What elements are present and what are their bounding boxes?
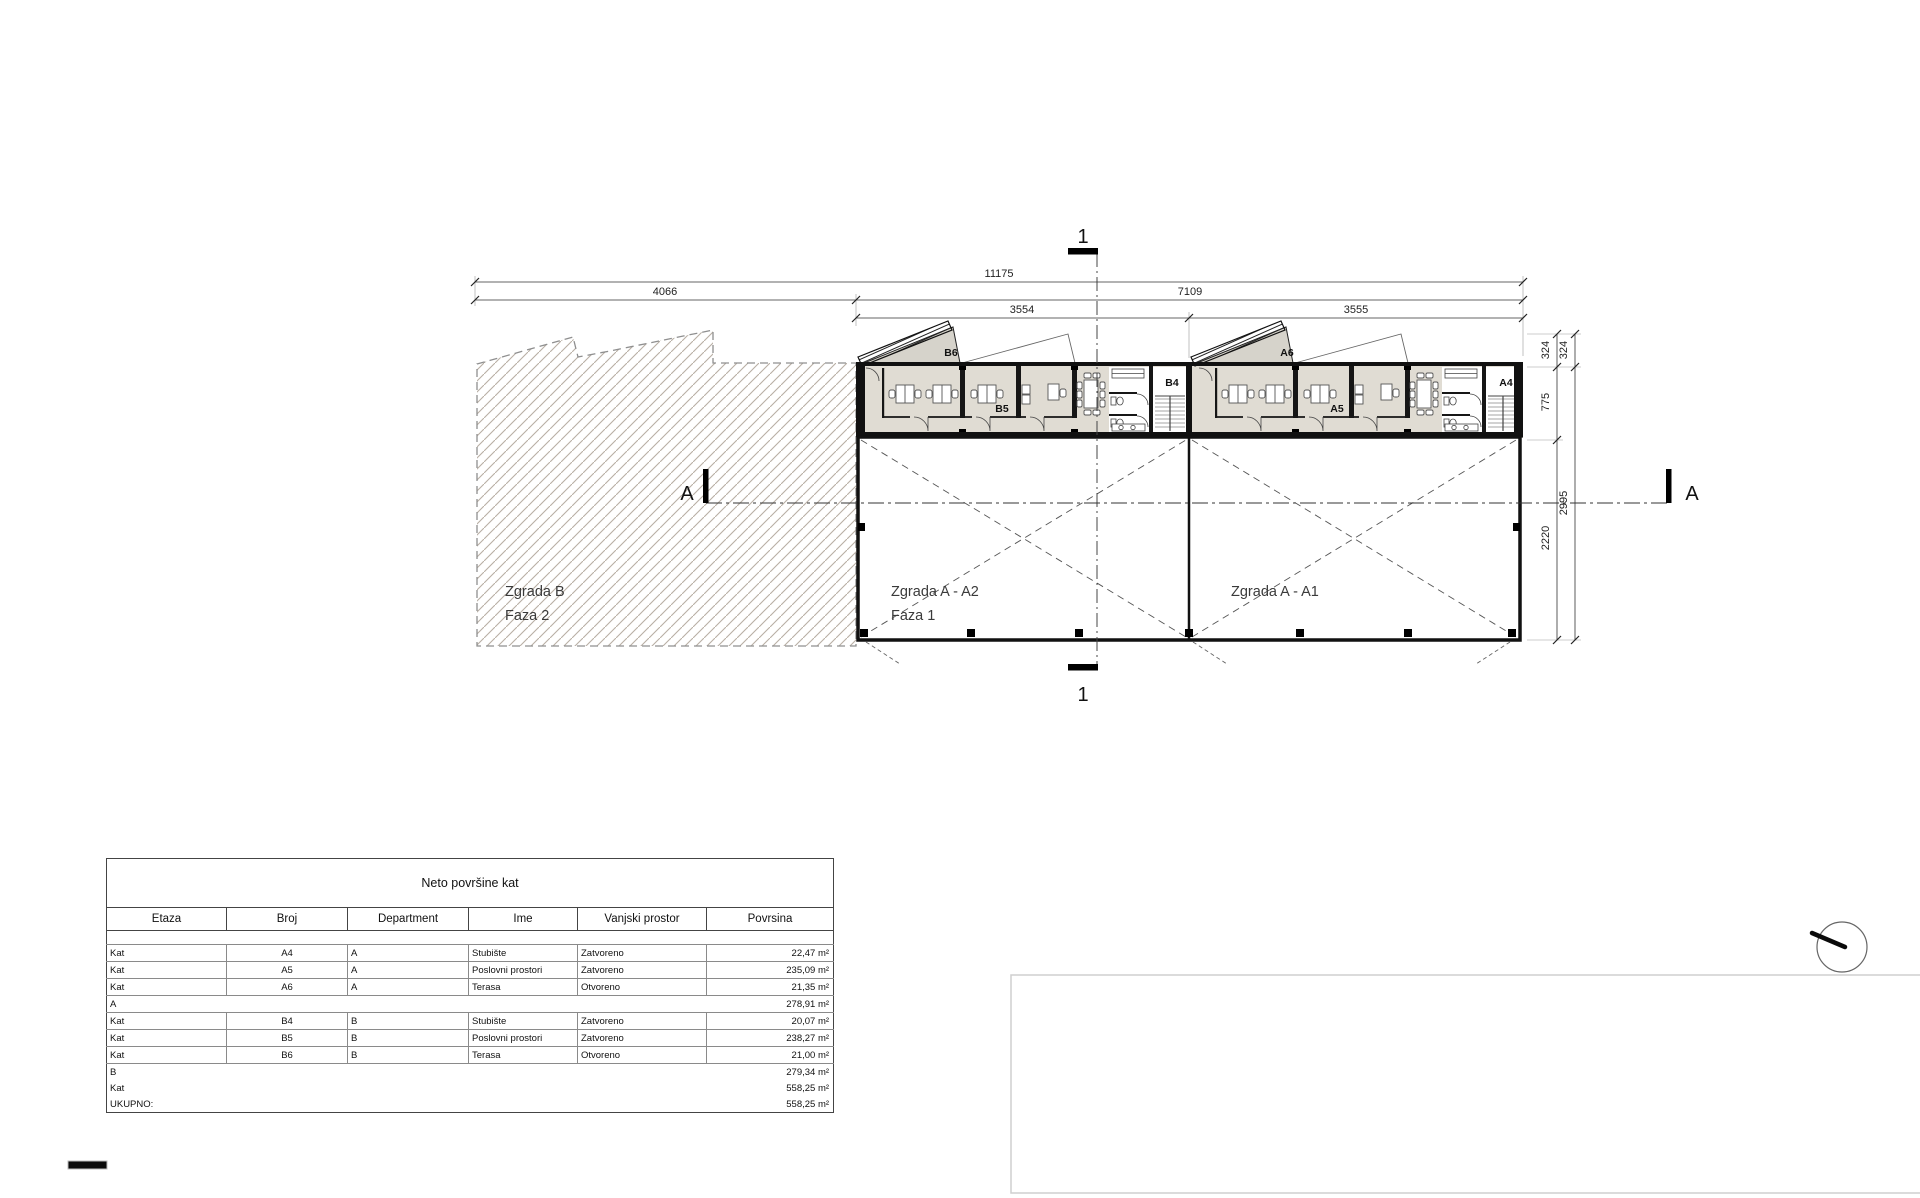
cell-total-value: 558,25 m² <box>707 1080 834 1096</box>
cell-vanjski: Otvoreno <box>578 979 707 996</box>
table-spacer-row <box>107 931 834 945</box>
room-label-a5: A5 <box>1330 403 1344 415</box>
cell-povrsina: 22,47 m² <box>707 945 834 962</box>
label-faza-2: Faza 2 <box>505 608 549 624</box>
hall <box>858 437 1520 664</box>
section-1-top-label: 1 <box>1077 226 1088 248</box>
section-1-bottom-bar <box>1068 664 1098 671</box>
table-row: Kat A4 A Stubište Zatvoreno 22,47 m² <box>107 945 834 962</box>
cell-broj: B6 <box>227 1047 348 1064</box>
table-row: Kat B4 B Stubište Zatvoreno 20,07 m² <box>107 1013 834 1030</box>
col-ime: Ime <box>469 908 578 931</box>
dimensions-horizontal <box>471 276 1527 358</box>
cell-grand-total-label: UKUPNO: <box>107 1096 707 1113</box>
cell-etaza: Kat <box>107 979 227 996</box>
dim-left: 4066 <box>653 286 677 298</box>
dimensions-vertical <box>1527 330 1581 644</box>
cell-department: A <box>348 962 469 979</box>
cell-povrsina: 21,35 m² <box>707 979 834 996</box>
label-zgrada-a2: Zgrada A - A2 <box>891 584 979 600</box>
dim-324-inner: 324 <box>1540 341 1552 359</box>
col-vanjski-prostor: Vanjski prostor <box>578 908 707 931</box>
dim-2220: 2220 <box>1540 526 1552 550</box>
room-label-a4: A4 <box>1499 377 1513 389</box>
label-faza-1: Faza 1 <box>891 608 935 624</box>
dim-775: 775 <box>1540 393 1552 411</box>
scale-bar <box>68 1161 107 1169</box>
label-zgrada-a1: Zgrada A - A1 <box>1231 584 1319 600</box>
dim-bay-a: 3555 <box>1344 304 1368 316</box>
cell-grand-total-value: 558,25 m² <box>707 1096 834 1113</box>
table-floor-total-row: Kat 558,25 m² <box>107 1080 834 1096</box>
dim-total: 11175 <box>985 268 1014 280</box>
cell-subtotal-value: 279,34 m² <box>707 1064 834 1081</box>
net-areas-table: Neto površine kat Etaza Broj Department … <box>106 858 834 1113</box>
cell-department: B <box>348 1030 469 1047</box>
cell-broj: A5 <box>227 962 348 979</box>
cell-ime: Stubište <box>469 1013 578 1030</box>
dim-right: 7109 <box>1178 286 1202 298</box>
cell-ime: Stubište <box>469 945 578 962</box>
cell-department: A <box>348 979 469 996</box>
col-etaza: Etaza <box>107 908 227 931</box>
table-title: Neto površine kat <box>107 859 834 908</box>
cell-vanjski: Zatvoreno <box>578 1013 707 1030</box>
cell-ime: Poslovni prostori <box>469 962 578 979</box>
table-row: Kat B5 B Poslovni prostori Zatvoreno 238… <box>107 1030 834 1047</box>
dim-324-outer: 324 <box>1558 341 1570 359</box>
table-header-row: Etaza Broj Department Ime Vanjski prosto… <box>107 908 834 931</box>
cell-etaza: Kat <box>107 1030 227 1047</box>
cell-department: B <box>348 1047 469 1064</box>
table-subtotal-row: A 278,91 m² <box>107 996 834 1013</box>
section-1-top-bar <box>1068 248 1098 255</box>
cell-vanjski: Otvoreno <box>578 1047 707 1064</box>
cell-ime: Terasa <box>469 979 578 996</box>
cell-broj: A6 <box>227 979 348 996</box>
cell-ime: Poslovni prostori <box>469 1030 578 1047</box>
cell-subtotal-value: 278,91 m² <box>707 996 834 1013</box>
cell-broj: A4 <box>227 945 348 962</box>
table-subtotal-row: B 279,34 m² <box>107 1064 834 1081</box>
col-broj: Broj <box>227 908 348 931</box>
cell-etaza: Kat <box>107 1013 227 1030</box>
section-a-left-bar <box>703 469 709 503</box>
cell-etaza: Kat <box>107 962 227 979</box>
cell-vanjski: Zatvoreno <box>578 1030 707 1047</box>
cell-broj: B5 <box>227 1030 348 1047</box>
cell-etaza: Kat <box>107 1047 227 1064</box>
cell-povrsina: 238,27 m² <box>707 1030 834 1047</box>
col-povrsina: Povrsina <box>707 908 834 931</box>
cell-povrsina: 20,07 m² <box>707 1013 834 1030</box>
section-a-left-label: A <box>680 483 694 505</box>
cell-department: A <box>348 945 469 962</box>
room-label-b4: B4 <box>1165 377 1179 389</box>
cell-total-label: Kat <box>107 1080 707 1096</box>
cell-povrsina: 235,09 m² <box>707 962 834 979</box>
cell-vanjski: Zatvoreno <box>578 962 707 979</box>
room-label-b6: B6 <box>944 347 958 359</box>
dim-2995: 2995 <box>1558 491 1570 515</box>
cell-department: B <box>348 1013 469 1030</box>
table-row: Kat A5 A Poslovni prostori Zatvoreno 235… <box>107 962 834 979</box>
drawing-sheet: 1 1 A A 11175 4066 7109 3554 3555 <box>0 0 1920 1198</box>
cell-povrsina: 21,00 m² <box>707 1047 834 1064</box>
table-grand-total-row: UKUPNO: 558,25 m² <box>107 1096 834 1113</box>
room-label-a6: A6 <box>1280 347 1294 359</box>
cell-subtotal-label: B <box>107 1064 707 1081</box>
cell-subtotal-label: A <box>107 996 707 1013</box>
label-zgrada-b: Zgrada B <box>505 584 565 600</box>
table-row: Kat B6 B Terasa Otvoreno 21,00 m² <box>107 1047 834 1064</box>
section-a-right-bar <box>1666 469 1672 503</box>
section-a-right-label: A <box>1685 483 1699 505</box>
cell-vanjski: Zatvoreno <box>578 945 707 962</box>
cell-etaza: Kat <box>107 945 227 962</box>
table-row: Kat A6 A Terasa Otvoreno 21,35 m² <box>107 979 834 996</box>
door-swings <box>866 642 1510 664</box>
col-department: Department <box>348 908 469 931</box>
cell-broj: B4 <box>227 1013 348 1030</box>
room-label-b5: B5 <box>995 403 1009 415</box>
dim-bay-b: 3554 <box>1010 304 1034 316</box>
office-strip <box>856 321 1523 438</box>
overlapping-sheet-panel <box>1011 975 1920 1193</box>
north-arrow <box>1812 922 1867 972</box>
section-1-bottom-label: 1 <box>1077 684 1088 706</box>
cell-ime: Terasa <box>469 1047 578 1064</box>
